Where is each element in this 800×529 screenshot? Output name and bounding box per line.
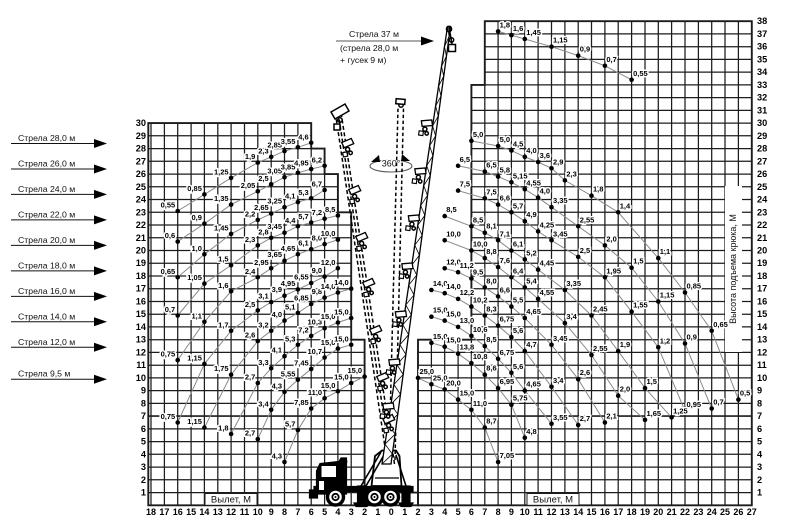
svg-text:5,5: 5,5	[513, 296, 523, 305]
svg-text:3,35: 3,35	[566, 279, 581, 288]
svg-text:6: 6	[141, 424, 146, 434]
svg-text:21: 21	[667, 507, 677, 517]
svg-text:38: 38	[757, 16, 767, 26]
svg-text:10,8: 10,8	[473, 352, 488, 361]
svg-text:30: 30	[136, 118, 146, 128]
svg-text:13,0: 13,0	[460, 316, 475, 325]
svg-text:4,1: 4,1	[285, 192, 295, 201]
svg-text:5,0: 5,0	[473, 130, 483, 139]
svg-text:15: 15	[586, 507, 596, 517]
svg-text:7,85: 7,85	[294, 398, 309, 407]
svg-text:2,7: 2,7	[245, 429, 255, 438]
svg-text:3,3: 3,3	[258, 358, 268, 367]
svg-text:14: 14	[199, 507, 209, 517]
svg-text:22: 22	[757, 220, 767, 230]
svg-text:11,2: 11,2	[460, 261, 474, 270]
svg-text:1,15: 1,15	[187, 417, 202, 426]
svg-text:1,2: 1,2	[660, 336, 670, 345]
svg-text:32: 32	[757, 93, 767, 103]
svg-text:9: 9	[141, 386, 146, 396]
svg-text:3,2: 3,2	[258, 320, 268, 329]
svg-text:8,5: 8,5	[446, 205, 456, 214]
svg-text:3,6: 3,6	[540, 151, 550, 160]
svg-text:1,6: 1,6	[218, 281, 228, 290]
svg-text:1,95: 1,95	[606, 266, 621, 275]
svg-text:1,15: 1,15	[553, 36, 568, 45]
svg-text:4: 4	[335, 507, 340, 517]
svg-text:6,55: 6,55	[294, 273, 309, 282]
svg-text:15,0: 15,0	[321, 381, 336, 390]
svg-text:19: 19	[640, 507, 650, 517]
svg-text:10,0: 10,0	[446, 229, 461, 238]
svg-text:15,0: 15,0	[334, 308, 349, 317]
svg-text:3,55: 3,55	[281, 137, 296, 146]
svg-text:2,1: 2,1	[606, 412, 616, 421]
svg-text:5: 5	[757, 437, 762, 447]
svg-text:7,2: 7,2	[312, 208, 322, 217]
svg-text:17: 17	[613, 507, 623, 517]
svg-text:1,6: 1,6	[513, 24, 523, 33]
svg-text:4,3: 4,3	[272, 452, 282, 461]
svg-text:6,5: 6,5	[460, 155, 470, 164]
svg-text:2: 2	[362, 507, 367, 517]
svg-text:4,1: 4,1	[272, 346, 282, 355]
svg-text:13: 13	[560, 507, 570, 517]
svg-text:1,75: 1,75	[214, 364, 229, 373]
svg-text:18: 18	[136, 271, 146, 281]
svg-text:30: 30	[757, 118, 767, 128]
svg-text:4: 4	[141, 449, 147, 459]
svg-text:3,4: 3,4	[566, 312, 577, 321]
svg-text:5: 5	[456, 507, 461, 517]
svg-text:9: 9	[757, 386, 762, 396]
svg-text:25: 25	[136, 182, 146, 192]
svg-text:Вылет, М: Вылет, М	[533, 495, 573, 506]
svg-text:1,5: 1,5	[218, 255, 228, 264]
svg-text:0,75: 0,75	[161, 412, 176, 421]
svg-text:10,0: 10,0	[321, 229, 336, 238]
svg-text:9: 9	[509, 507, 514, 517]
svg-text:2,55: 2,55	[580, 215, 595, 224]
svg-text:1,45: 1,45	[214, 223, 229, 232]
svg-text:8,7: 8,7	[486, 417, 496, 426]
svg-text:0,7: 0,7	[713, 398, 723, 407]
svg-text:10,7: 10,7	[307, 347, 322, 356]
svg-text:10: 10	[136, 373, 146, 383]
svg-text:13,8: 13,8	[460, 343, 475, 352]
svg-text:8,3: 8,3	[486, 305, 496, 314]
svg-text:5,1: 5,1	[285, 302, 295, 311]
svg-text:3,45: 3,45	[553, 334, 568, 343]
svg-text:3,35: 3,35	[553, 196, 568, 205]
svg-text:6,2: 6,2	[312, 155, 322, 164]
svg-text:8: 8	[757, 398, 762, 408]
svg-text:2,0: 2,0	[606, 234, 616, 243]
svg-text:2,05: 2,05	[241, 181, 256, 190]
svg-text:Вылет, М: Вылет, М	[211, 495, 251, 506]
svg-text:1,7: 1,7	[218, 320, 228, 329]
svg-text:0,5: 0,5	[740, 389, 750, 398]
svg-text:3,25: 3,25	[267, 197, 282, 206]
svg-text:1,1: 1,1	[191, 311, 201, 320]
svg-text:1,15: 1,15	[187, 353, 202, 362]
svg-text:3,4: 3,4	[553, 376, 564, 385]
svg-text:10: 10	[520, 507, 530, 517]
svg-text:1,5: 1,5	[647, 377, 657, 386]
svg-text:7,2: 7,2	[298, 325, 308, 334]
svg-text:4,65: 4,65	[526, 307, 541, 316]
svg-text:7,5: 7,5	[460, 180, 470, 189]
svg-text:4,5: 4,5	[513, 140, 523, 149]
svg-text:25: 25	[757, 182, 767, 192]
svg-text:3: 3	[349, 507, 354, 517]
svg-text:8,1: 8,1	[486, 222, 496, 231]
svg-text:0,85: 0,85	[687, 282, 702, 291]
svg-text:2,3: 2,3	[245, 235, 255, 244]
svg-text:12: 12	[226, 507, 236, 517]
svg-text:12: 12	[136, 347, 146, 357]
svg-text:360°: 360°	[382, 159, 401, 169]
svg-text:7: 7	[482, 507, 487, 517]
svg-text:5,7: 5,7	[285, 420, 295, 429]
svg-text:2,0: 2,0	[620, 385, 630, 394]
svg-text:8,6: 8,6	[486, 364, 496, 373]
svg-text:23: 23	[757, 207, 767, 217]
svg-text:10,6: 10,6	[473, 325, 488, 334]
svg-text:33: 33	[757, 80, 767, 90]
svg-text:24: 24	[136, 195, 147, 205]
svg-text:11: 11	[240, 507, 250, 517]
svg-text:0,55: 0,55	[633, 69, 648, 78]
svg-text:8,8: 8,8	[486, 247, 496, 256]
svg-text:1: 1	[141, 488, 146, 498]
svg-text:1,15: 1,15	[660, 291, 675, 300]
svg-text:4,4: 4,4	[285, 216, 296, 225]
svg-text:10: 10	[757, 373, 767, 383]
svg-text:0,9: 0,9	[580, 45, 590, 54]
svg-text:4,6: 4,6	[298, 132, 308, 141]
svg-text:6,85: 6,85	[294, 294, 309, 303]
svg-text:5,55: 5,55	[281, 369, 296, 378]
svg-text:4,45: 4,45	[540, 259, 555, 268]
svg-text:4,0: 4,0	[526, 146, 536, 155]
svg-text:3,4: 3,4	[258, 399, 269, 408]
svg-text:2,5: 2,5	[580, 246, 590, 255]
svg-text:2,55: 2,55	[593, 344, 608, 353]
svg-text:11: 11	[533, 507, 543, 517]
svg-text:18: 18	[146, 507, 156, 517]
svg-text:1,1: 1,1	[660, 247, 670, 256]
svg-text:4,3: 4,3	[272, 381, 282, 390]
svg-text:2,4: 2,4	[245, 267, 256, 276]
svg-text:0,85: 0,85	[187, 184, 202, 193]
svg-text:2,7: 2,7	[245, 373, 255, 382]
svg-text:Стрела 20,0 м: Стрела 20,0 м	[18, 235, 75, 245]
svg-text:8,5: 8,5	[473, 215, 483, 224]
svg-text:0: 0	[389, 507, 394, 517]
svg-text:0,65: 0,65	[713, 320, 728, 329]
svg-text:4,65: 4,65	[281, 244, 296, 253]
svg-text:14: 14	[757, 322, 768, 332]
svg-text:2: 2	[415, 507, 420, 517]
svg-text:27: 27	[136, 156, 146, 166]
svg-text:10,2: 10,2	[473, 296, 488, 305]
svg-text:5,4: 5,4	[526, 276, 537, 285]
svg-text:26: 26	[136, 169, 146, 179]
svg-text:1,0: 1,0	[191, 244, 201, 253]
svg-text:5,7: 5,7	[513, 201, 523, 210]
svg-text:18: 18	[757, 271, 767, 281]
svg-text:20: 20	[653, 507, 663, 517]
svg-text:Стрела 16,0 м: Стрела 16,0 м	[18, 286, 75, 296]
svg-text:13: 13	[757, 335, 767, 345]
svg-text:7,6: 7,6	[500, 256, 510, 265]
svg-text:16: 16	[136, 297, 146, 307]
svg-text:1: 1	[375, 507, 380, 517]
svg-text:1,9: 1,9	[245, 152, 255, 161]
svg-text:6,4: 6,4	[513, 266, 524, 275]
svg-text:15,0: 15,0	[334, 334, 349, 343]
svg-text:0,9: 0,9	[687, 333, 697, 342]
svg-text:25: 25	[720, 507, 730, 517]
svg-text:17: 17	[159, 507, 169, 517]
svg-text:1,4: 1,4	[620, 201, 631, 210]
svg-text:28: 28	[136, 144, 146, 154]
svg-text:19: 19	[757, 258, 767, 268]
svg-text:29: 29	[136, 131, 146, 141]
svg-text:8,5: 8,5	[486, 335, 496, 344]
svg-text:12,0: 12,0	[321, 258, 336, 267]
svg-text:3,55: 3,55	[553, 413, 568, 422]
svg-text:17: 17	[136, 284, 146, 294]
svg-text:Стрела 9,5 м: Стрела 9,5 м	[18, 369, 70, 379]
svg-text:Стрела 37 м: Стрела 37 м	[349, 29, 399, 39]
svg-text:9,0: 9,0	[312, 266, 322, 275]
svg-text:4,55: 4,55	[540, 288, 555, 297]
svg-text:5,75: 5,75	[513, 394, 528, 403]
svg-text:2,7: 2,7	[580, 414, 590, 423]
svg-text:9,5: 9,5	[473, 268, 483, 277]
svg-text:7: 7	[141, 411, 146, 421]
svg-text:28: 28	[757, 144, 767, 154]
svg-text:4,7: 4,7	[526, 340, 536, 349]
svg-text:0,7: 0,7	[165, 305, 175, 314]
svg-text:6,75: 6,75	[500, 348, 515, 357]
svg-text:4: 4	[442, 507, 447, 517]
svg-text:29: 29	[757, 131, 767, 141]
svg-text:20: 20	[757, 246, 767, 256]
svg-text:24: 24	[707, 507, 717, 517]
svg-text:6,1: 6,1	[298, 239, 308, 248]
svg-text:15: 15	[136, 309, 146, 319]
svg-text:Высота подъема крюка, М: Высота подъема крюка, М	[728, 214, 738, 324]
svg-text:8: 8	[282, 507, 287, 517]
svg-text:4,95: 4,95	[294, 159, 309, 168]
svg-text:6: 6	[309, 507, 314, 517]
svg-text:16: 16	[757, 297, 767, 307]
svg-text:3: 3	[429, 507, 434, 517]
svg-text:1,8: 1,8	[500, 20, 510, 29]
svg-text:20: 20	[136, 246, 146, 256]
svg-text:5,6: 5,6	[513, 362, 523, 371]
svg-text:1: 1	[757, 488, 762, 498]
svg-text:3: 3	[757, 462, 762, 472]
svg-text:5,0: 5,0	[500, 135, 510, 144]
svg-text:23: 23	[136, 207, 146, 217]
svg-text:22: 22	[136, 220, 146, 230]
svg-text:5,7: 5,7	[298, 212, 308, 221]
svg-text:8,5: 8,5	[325, 205, 335, 214]
svg-text:0,7: 0,7	[606, 55, 616, 64]
svg-text:Стрела 18,0 м: Стрела 18,0 м	[18, 260, 75, 270]
svg-text:6: 6	[469, 507, 474, 517]
svg-text:2,3: 2,3	[566, 169, 576, 178]
svg-text:21: 21	[757, 233, 767, 243]
svg-text:3: 3	[141, 462, 146, 472]
svg-text:17: 17	[757, 284, 767, 294]
svg-text:0,75: 0,75	[161, 350, 176, 359]
svg-text:26: 26	[757, 169, 767, 179]
svg-text:9: 9	[269, 507, 274, 517]
svg-text:Стрела 26,0 м: Стрела 26,0 м	[18, 159, 75, 169]
svg-text:8,0: 8,0	[486, 276, 496, 285]
svg-text:7,45: 7,45	[294, 359, 309, 368]
svg-text:0,55: 0,55	[161, 201, 176, 210]
svg-text:13: 13	[213, 507, 223, 517]
svg-text:8: 8	[141, 398, 146, 408]
svg-text:Стрела 12,0 м: Стрела 12,0 м	[18, 337, 75, 347]
svg-text:16: 16	[600, 507, 610, 517]
svg-text:23: 23	[693, 507, 703, 517]
svg-text:Стрела 24,0 м: Стрела 24,0 м	[18, 184, 75, 194]
svg-text:15: 15	[186, 507, 196, 517]
svg-text:4,25: 4,25	[540, 220, 555, 229]
svg-text:22: 22	[680, 507, 690, 517]
svg-text:11: 11	[136, 360, 146, 370]
svg-text:18: 18	[627, 507, 637, 517]
svg-text:6,6: 6,6	[500, 194, 510, 203]
svg-text:2,6: 2,6	[580, 368, 590, 377]
svg-text:+ гусек 9 м): + гусек 9 м)	[340, 55, 387, 65]
svg-text:1,8: 1,8	[593, 185, 603, 194]
svg-text:14,0: 14,0	[334, 278, 349, 287]
svg-text:27: 27	[747, 507, 757, 517]
svg-text:(стрела 28,0 м: (стрела 28,0 м	[340, 43, 398, 53]
svg-text:5,2: 5,2	[526, 248, 536, 257]
svg-text:7: 7	[757, 411, 762, 421]
svg-text:2,45: 2,45	[593, 305, 608, 314]
svg-text:2,6: 2,6	[245, 331, 255, 340]
svg-text:15,0: 15,0	[460, 389, 475, 398]
svg-text:37: 37	[757, 29, 767, 39]
svg-text:19: 19	[136, 258, 146, 268]
svg-text:7,1: 7,1	[500, 229, 510, 238]
svg-text:2: 2	[141, 475, 146, 485]
svg-text:6,7: 6,7	[312, 180, 322, 189]
svg-text:0,9: 0,9	[191, 213, 201, 222]
svg-text:2,9: 2,9	[553, 157, 563, 166]
svg-text:10: 10	[253, 507, 263, 517]
svg-text:12: 12	[757, 347, 767, 357]
svg-text:3,45: 3,45	[553, 229, 568, 238]
svg-text:5: 5	[141, 437, 146, 447]
svg-text:0,65: 0,65	[161, 267, 176, 276]
svg-text:0,95: 0,95	[687, 400, 702, 409]
svg-text:20,0: 20,0	[446, 378, 461, 387]
svg-text:11: 11	[757, 360, 767, 370]
svg-text:3,1: 3,1	[258, 292, 268, 301]
svg-text:12: 12	[546, 507, 556, 517]
svg-text:31: 31	[757, 105, 767, 115]
svg-text:24: 24	[757, 195, 768, 205]
svg-text:1,65: 1,65	[647, 409, 662, 418]
svg-text:34: 34	[757, 67, 768, 77]
svg-text:1,35: 1,35	[214, 194, 229, 203]
svg-text:5,3: 5,3	[298, 188, 308, 197]
svg-text:5: 5	[322, 507, 327, 517]
svg-text:36: 36	[757, 42, 767, 52]
svg-text:Стрела 22,0 м: Стрела 22,0 м	[18, 209, 75, 219]
svg-text:35: 35	[757, 54, 767, 64]
svg-text:6,5: 6,5	[486, 161, 496, 170]
svg-text:4,0: 4,0	[540, 187, 550, 196]
svg-text:8: 8	[496, 507, 501, 517]
svg-text:7,5: 7,5	[486, 187, 496, 196]
svg-text:5,8: 5,8	[500, 166, 510, 175]
svg-text:1,25: 1,25	[673, 406, 688, 415]
svg-text:6,95: 6,95	[500, 377, 515, 386]
svg-text:3,45: 3,45	[267, 222, 282, 231]
svg-text:4,65: 4,65	[526, 380, 541, 389]
svg-text:14: 14	[573, 507, 583, 517]
svg-text:1,05: 1,05	[187, 273, 202, 282]
svg-text:26: 26	[733, 507, 743, 517]
svg-text:4: 4	[757, 449, 763, 459]
svg-text:7,05: 7,05	[500, 451, 515, 460]
svg-text:0,6: 0,6	[165, 231, 175, 240]
svg-text:16: 16	[173, 507, 183, 517]
svg-text:1,8: 1,8	[218, 424, 228, 433]
svg-text:4,9: 4,9	[526, 210, 536, 219]
svg-text:1,5: 1,5	[633, 257, 643, 266]
svg-text:4,0: 4,0	[272, 310, 282, 319]
svg-text:1,9: 1,9	[620, 340, 630, 349]
svg-text:1: 1	[402, 507, 407, 517]
svg-text:6: 6	[757, 424, 762, 434]
svg-text:7: 7	[295, 507, 300, 517]
svg-text:Стрела 14,0 м: Стрела 14,0 м	[18, 311, 75, 321]
svg-text:1,45: 1,45	[526, 28, 541, 37]
svg-text:11,0: 11,0	[473, 399, 487, 408]
svg-text:5,3: 5,3	[285, 334, 295, 343]
svg-text:2,5: 2,5	[245, 300, 255, 309]
svg-text:Стрела 28,0 м: Стрела 28,0 м	[18, 133, 75, 143]
svg-text:2: 2	[757, 475, 762, 485]
svg-text:1,55: 1,55	[633, 301, 648, 310]
svg-text:15: 15	[757, 309, 767, 319]
svg-text:6,6: 6,6	[500, 285, 510, 294]
svg-text:13: 13	[136, 335, 146, 345]
svg-text:27: 27	[757, 156, 767, 166]
svg-text:1,25: 1,25	[214, 167, 229, 176]
svg-text:6,75: 6,75	[500, 315, 515, 324]
svg-text:5,6: 5,6	[513, 326, 523, 335]
svg-text:15,0: 15,0	[347, 366, 362, 375]
svg-text:6,1: 6,1	[513, 240, 523, 249]
svg-text:14: 14	[136, 322, 147, 332]
svg-text:21: 21	[136, 233, 146, 243]
svg-text:4,8: 4,8	[526, 427, 536, 436]
